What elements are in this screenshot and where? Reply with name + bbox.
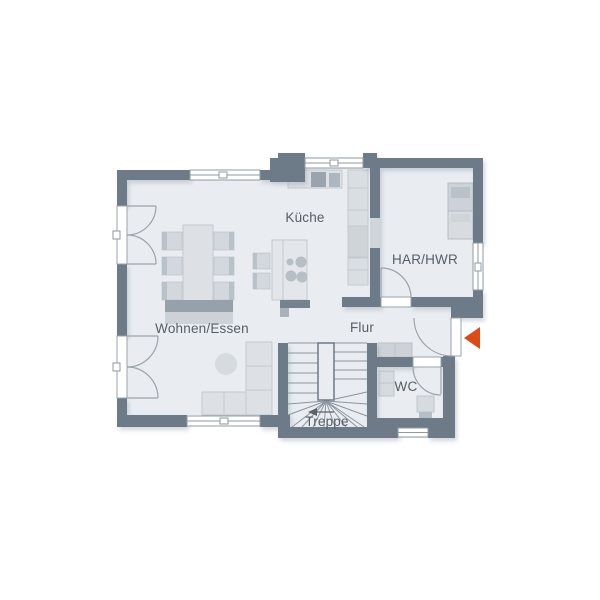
living-bottom-window: [187, 416, 260, 426]
washer: [448, 183, 473, 211]
dining-table: [183, 225, 213, 303]
kitchen-tall-units: [348, 170, 368, 285]
room-label-wc: WC: [395, 379, 418, 394]
room-label-treppe: Treppe: [305, 414, 348, 429]
living-top-window: [190, 170, 260, 180]
entrance-arrow-icon: [464, 327, 480, 349]
room-label-kueche: Küche: [285, 210, 324, 225]
stair-spine: [318, 343, 334, 400]
kitchen-window: [305, 158, 363, 168]
toilet: [417, 396, 434, 420]
dryer: [448, 211, 473, 239]
floor-plan-page: Wohnen/Essen Küche HAR/HWR Flur WC Trepp…: [0, 0, 600, 600]
har-window: [473, 243, 483, 290]
hall-sideboard: [378, 343, 412, 357]
fridge: [348, 226, 368, 257]
wall-niche: [370, 218, 380, 248]
room-label-flur: Flur: [350, 320, 374, 335]
room-label-wohnen-essen: Wohnen/Essen: [155, 321, 249, 336]
wc-sink: [379, 371, 394, 396]
room-label-har-hwr: HAR/HWR: [392, 252, 458, 267]
coffee-table: [215, 353, 237, 375]
floor-plan-drawing: Wohnen/Essen Küche HAR/HWR Flur WC Trepp…: [0, 0, 600, 600]
wc-window: [398, 428, 428, 437]
